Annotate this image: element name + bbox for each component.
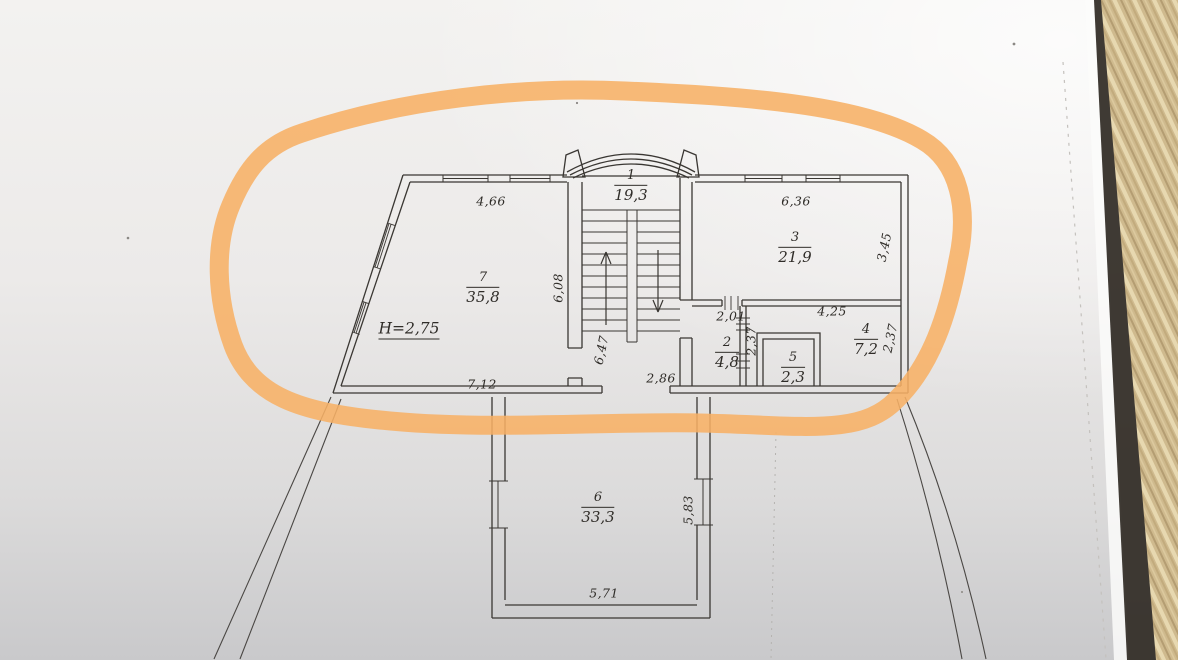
- room-6-area: 33,3: [581, 507, 614, 525]
- room-1-label: 1 19,3: [614, 169, 647, 203]
- room-4-area: 7,2: [854, 339, 878, 357]
- room-3-number: 3: [778, 231, 811, 248]
- dim-room7-bottom: 7,12: [467, 377, 496, 392]
- dim-room4-top: 4,25: [817, 304, 846, 319]
- height-note: H=2,75: [378, 319, 439, 338]
- room-3-area: 21,9: [778, 247, 811, 265]
- dim-room3-top: 6,36: [781, 194, 810, 209]
- room-5-label: 5 2,3: [781, 351, 805, 385]
- room-6-label: 6 33,3: [581, 491, 614, 525]
- room-6-number: 6: [581, 491, 614, 508]
- room-4-number: 4: [854, 323, 878, 340]
- room-7-area: 35,8: [466, 287, 499, 305]
- floor-plan-drawing: [0, 0, 1178, 660]
- room-1-number: 1: [614, 169, 647, 186]
- dim-room6-right: 5,83: [681, 495, 696, 524]
- room-7-number: 7: [466, 271, 499, 288]
- floor-plan-photo: 1 19,3 7 35,8 3 21,9 2 4,8 5 2,3 4 7,2 6…: [0, 0, 1178, 660]
- room-3-label: 3 21,9: [778, 231, 811, 265]
- dim-room7-top: 4,66: [476, 194, 505, 209]
- room-1-area: 19,3: [614, 185, 647, 203]
- room-5-area: 2,3: [781, 367, 805, 385]
- height-note-text: H=2,75: [378, 320, 439, 340]
- dim-room2-right: 2,37: [744, 326, 759, 355]
- dim-room2-top: 2,01: [716, 309, 745, 324]
- room-2-area: 4,8: [715, 352, 739, 370]
- dim-room6-bottom: 5,71: [589, 586, 618, 601]
- room-2-label: 2 4,8: [715, 336, 739, 370]
- room-5-number: 5: [781, 351, 805, 368]
- dim-corridor-opening: 2,86: [646, 371, 675, 386]
- room-2-number: 2: [715, 336, 739, 353]
- room-4-label: 4 7,2: [854, 323, 878, 357]
- dim-room7-right: 6,08: [551, 273, 566, 302]
- room-7-label: 7 35,8: [466, 271, 499, 305]
